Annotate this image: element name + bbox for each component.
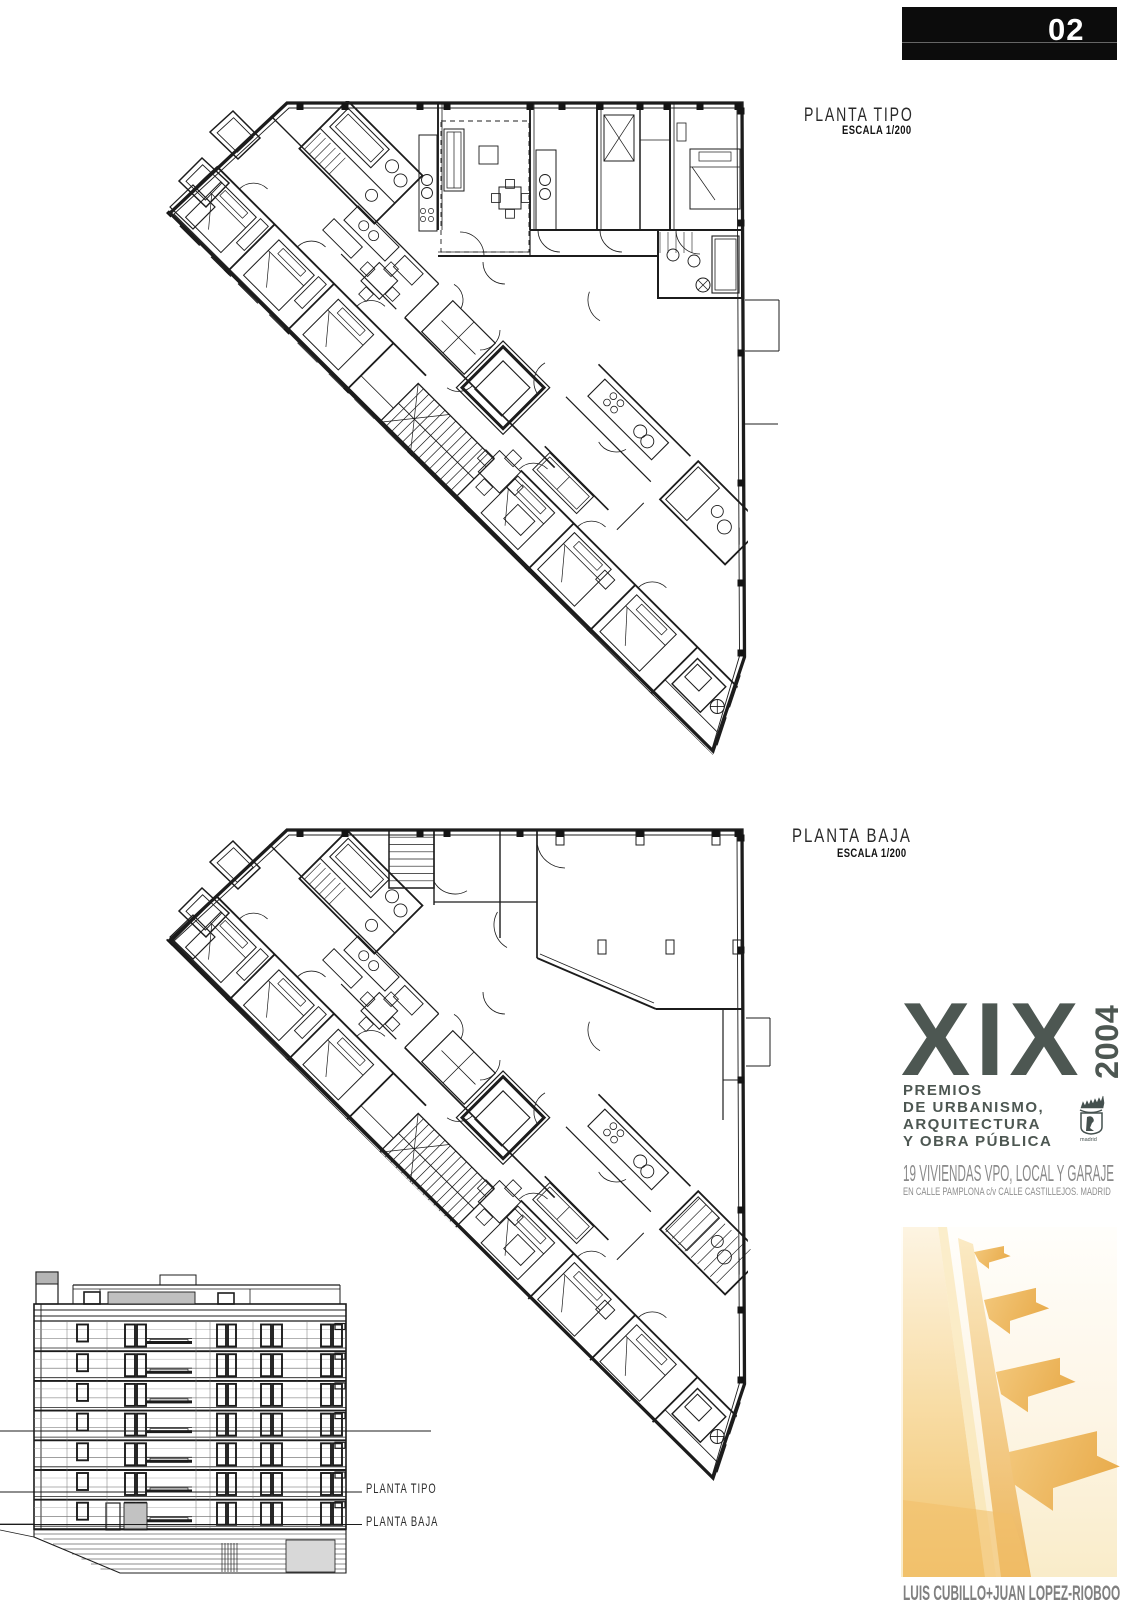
svg-text:madrid: madrid [1080,1137,1097,1143]
